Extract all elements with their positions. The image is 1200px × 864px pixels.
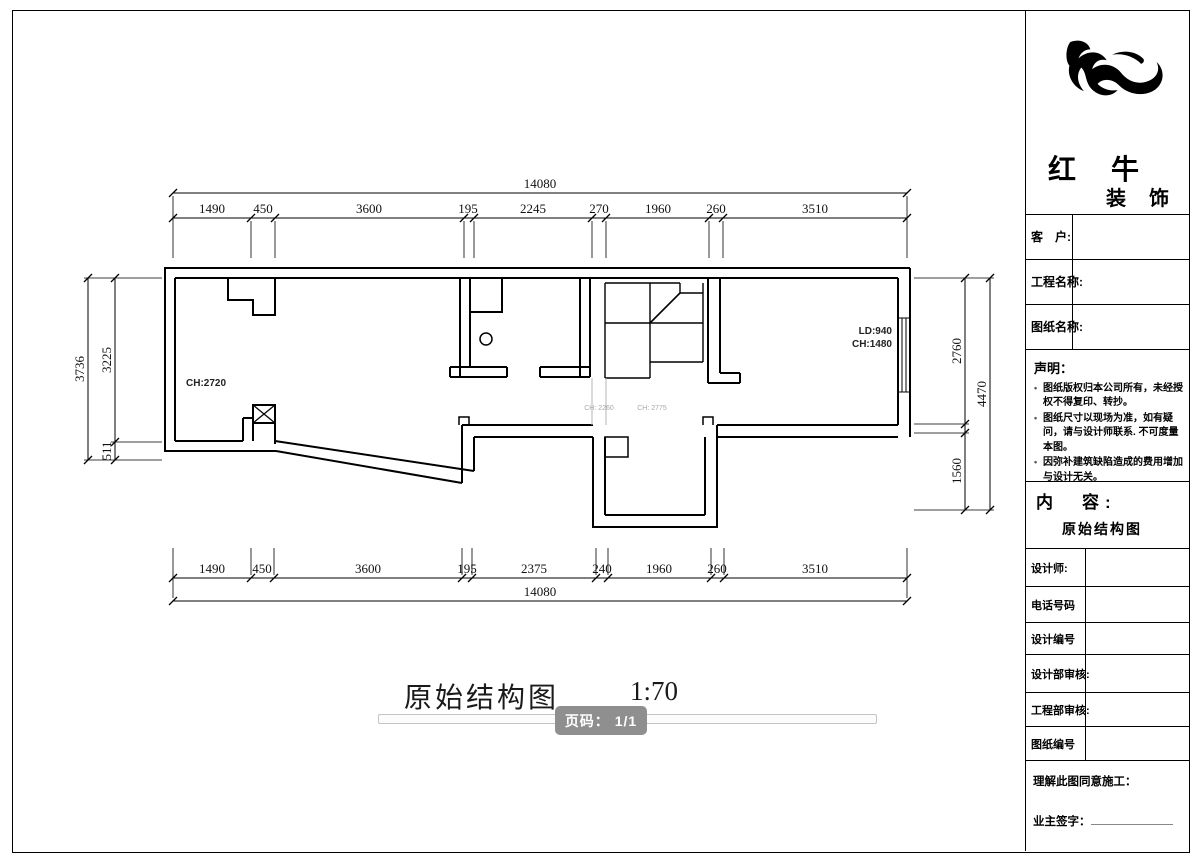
ceiling-height-label-left: CH:2720 <box>186 378 226 389</box>
bath-right-wall <box>580 278 590 377</box>
column-symbol <box>253 405 275 423</box>
field-row-customer: 客 户: <box>1026 215 1189 260</box>
wall-stub-left <box>243 418 253 441</box>
dim-bot-3: 195 <box>457 561 477 576</box>
engineering-review-value <box>1086 693 1189 726</box>
design-no-label: 设计编号 <box>1026 623 1086 654</box>
drawing-sheet: CH:2720 LD:940 CH:1480 CH: 2260 CH: 2775 <box>0 0 1200 864</box>
field-row-designer: 设计师: <box>1026 549 1189 587</box>
dim-right-1: 1560 <box>949 458 964 484</box>
dim-bot-0: 1490 <box>199 561 225 576</box>
drawing-no-value <box>1086 727 1189 760</box>
phone-value <box>1086 587 1189 622</box>
stair-right-wall <box>708 278 740 383</box>
inner-wall-top-left <box>175 278 898 441</box>
dim-top-6: 1960 <box>645 201 671 216</box>
field-row-project-name: 工程名称: <box>1026 260 1189 305</box>
dim-left-0: 3225 <box>99 347 114 373</box>
dim-top-0: 1490 <box>199 201 225 216</box>
dim-top-total: 14080 <box>524 176 557 191</box>
dim-bot-8: 3510 <box>802 561 828 576</box>
owner-signature-text: 业主签字： <box>1033 816 1091 828</box>
designer-value <box>1086 549 1189 586</box>
agreement-text: 理解此图同意施工： <box>1033 773 1189 789</box>
drawing-no-label: 图纸编号 <box>1026 727 1086 760</box>
title-block-sidebar: 红 牛 装 饰 客 户: 工程名称: 图纸名称: 声明： • 图纸版权归本公司所… <box>1025 10 1189 851</box>
project-name-label: 工程名称: <box>1026 260 1073 304</box>
statement-item: • 图纸版权归本公司所有，未经授权不得复印、转抄。 <box>1034 382 1185 411</box>
page-number-badge: 页码： 1/1 <box>555 706 647 735</box>
dim-right-0: 2760 <box>949 338 964 364</box>
floor-plan-drawing: CH:2720 LD:940 CH:1480 CH: 2260 CH: 2775 <box>0 0 1020 864</box>
brand-block: 红 牛 装 饰 <box>1026 10 1189 215</box>
customer-value <box>1073 215 1189 259</box>
stair-treads <box>605 283 703 378</box>
brand-name-sub: 装 饰 <box>1106 182 1178 211</box>
fixture-circle <box>480 333 492 345</box>
corridor-bottom-wall-right <box>717 425 898 437</box>
content-value: 原始结构图 <box>1062 519 1189 539</box>
dim-bot-6: 1960 <box>646 561 672 576</box>
customer-label: 客 户: <box>1026 215 1073 259</box>
bath-left-wall <box>460 278 470 377</box>
dim-bot-total: 14080 <box>524 584 557 599</box>
dim-bot-5: 240 <box>592 561 612 576</box>
dim-left-total: 3736 <box>72 356 87 383</box>
corridor-bottom-wall-left <box>462 425 593 437</box>
top-duct <box>228 278 275 315</box>
bath-corner-box <box>470 278 502 312</box>
design-review-label: 设计部审核: <box>1026 655 1086 692</box>
left-extension-lines <box>84 278 162 460</box>
field-row-design-review: 设计部审核: <box>1026 655 1189 693</box>
field-row-design-no: 设计编号 <box>1026 623 1189 655</box>
sheet-scale: 1:70 <box>630 676 678 707</box>
dimension-ticks <box>84 189 994 605</box>
column-legs <box>253 423 275 444</box>
sloped-wall <box>275 441 474 483</box>
ld-label-right: LD:940 <box>859 326 893 337</box>
field-row-engineering-review: 工程部审核: <box>1026 693 1189 727</box>
engineering-review-label: 工程部审核: <box>1026 693 1086 726</box>
dim-bot-7: 260 <box>707 561 727 576</box>
project-name-value <box>1073 260 1189 304</box>
gray-guide-lines <box>592 378 606 425</box>
statement-title: 声明： <box>1034 358 1185 377</box>
field-row-phone: 电话号码 <box>1026 587 1189 623</box>
dim-bot-4: 2375 <box>521 561 547 576</box>
dim-top-4: 2245 <box>520 201 546 216</box>
gray-height-label-2: CH: 2775 <box>637 405 667 412</box>
design-review-value <box>1086 655 1189 692</box>
lower-room-walls <box>593 425 717 527</box>
slope-end-wall <box>462 425 474 483</box>
dim-bot-1: 450 <box>252 561 272 576</box>
statement-item-text: 图纸尺寸以现场为准，如有疑问，请与设计师联系. 不可度量本图。 <box>1043 412 1185 456</box>
sheet-title: 原始结构图 <box>404 676 559 716</box>
statement-item-text: 图纸版权归本公司所有，未经授权不得复印、转抄。 <box>1043 382 1185 411</box>
bath-bottom-wall-a <box>450 367 507 377</box>
signature-block: 理解此图同意施工： 业主签字： <box>1026 761 1189 851</box>
gray-height-label-1: CH: 2260 <box>584 405 614 412</box>
dim-left-1: 511 <box>99 441 114 460</box>
dim-top-1: 450 <box>253 201 273 216</box>
phone-label: 电话号码 <box>1026 587 1086 622</box>
statement-block: 声明： • 图纸版权归本公司所有，未经授权不得复印、转抄。 • 图纸尺寸以现场为… <box>1026 350 1189 482</box>
field-row-drawing-name: 图纸名称: <box>1026 305 1189 350</box>
design-no-value <box>1086 623 1189 654</box>
bull-logo-icon <box>1054 32 1172 132</box>
dim-top-7: 260 <box>706 201 726 216</box>
ceiling-height-label-right: CH:1480 <box>852 339 892 350</box>
dim-top-5: 270 <box>589 201 609 216</box>
dim-top-2: 3600 <box>356 201 382 216</box>
bullet-icon: • <box>1034 412 1043 456</box>
bullet-icon: • <box>1034 382 1043 411</box>
designer-label: 设计师: <box>1026 549 1086 586</box>
content-label: 内 容: <box>1036 488 1189 513</box>
shaft-box <box>605 437 628 457</box>
wall-notches <box>459 417 713 425</box>
dim-top-3: 195 <box>458 201 478 216</box>
statement-item: • 图纸尺寸以现场为准，如有疑问，请与设计师联系. 不可度量本图。 <box>1034 412 1185 456</box>
dimension-lines <box>88 193 990 601</box>
outer-wall-top-left <box>165 268 910 451</box>
column-x-mark <box>253 405 275 423</box>
wall-lines <box>165 268 910 527</box>
drawing-name-label: 图纸名称: <box>1026 305 1073 349</box>
dim-bot-2: 3600 <box>355 561 381 576</box>
field-row-drawing-no: 图纸编号 <box>1026 727 1189 761</box>
content-block: 内 容: 原始结构图 <box>1026 482 1189 550</box>
extension-lines <box>84 196 994 598</box>
stair-diagonal <box>650 293 680 323</box>
dim-top-8: 3510 <box>802 201 828 216</box>
staircase <box>605 283 703 378</box>
drawing-name-value <box>1073 305 1189 349</box>
bath-bottom-wall-b <box>540 367 590 377</box>
owner-signature-label: 业主签字： <box>1033 813 1189 829</box>
right-wall <box>898 268 910 437</box>
dim-right-total: 4470 <box>974 381 989 407</box>
window-symbol <box>898 318 910 392</box>
signature-line <box>1091 814 1173 825</box>
